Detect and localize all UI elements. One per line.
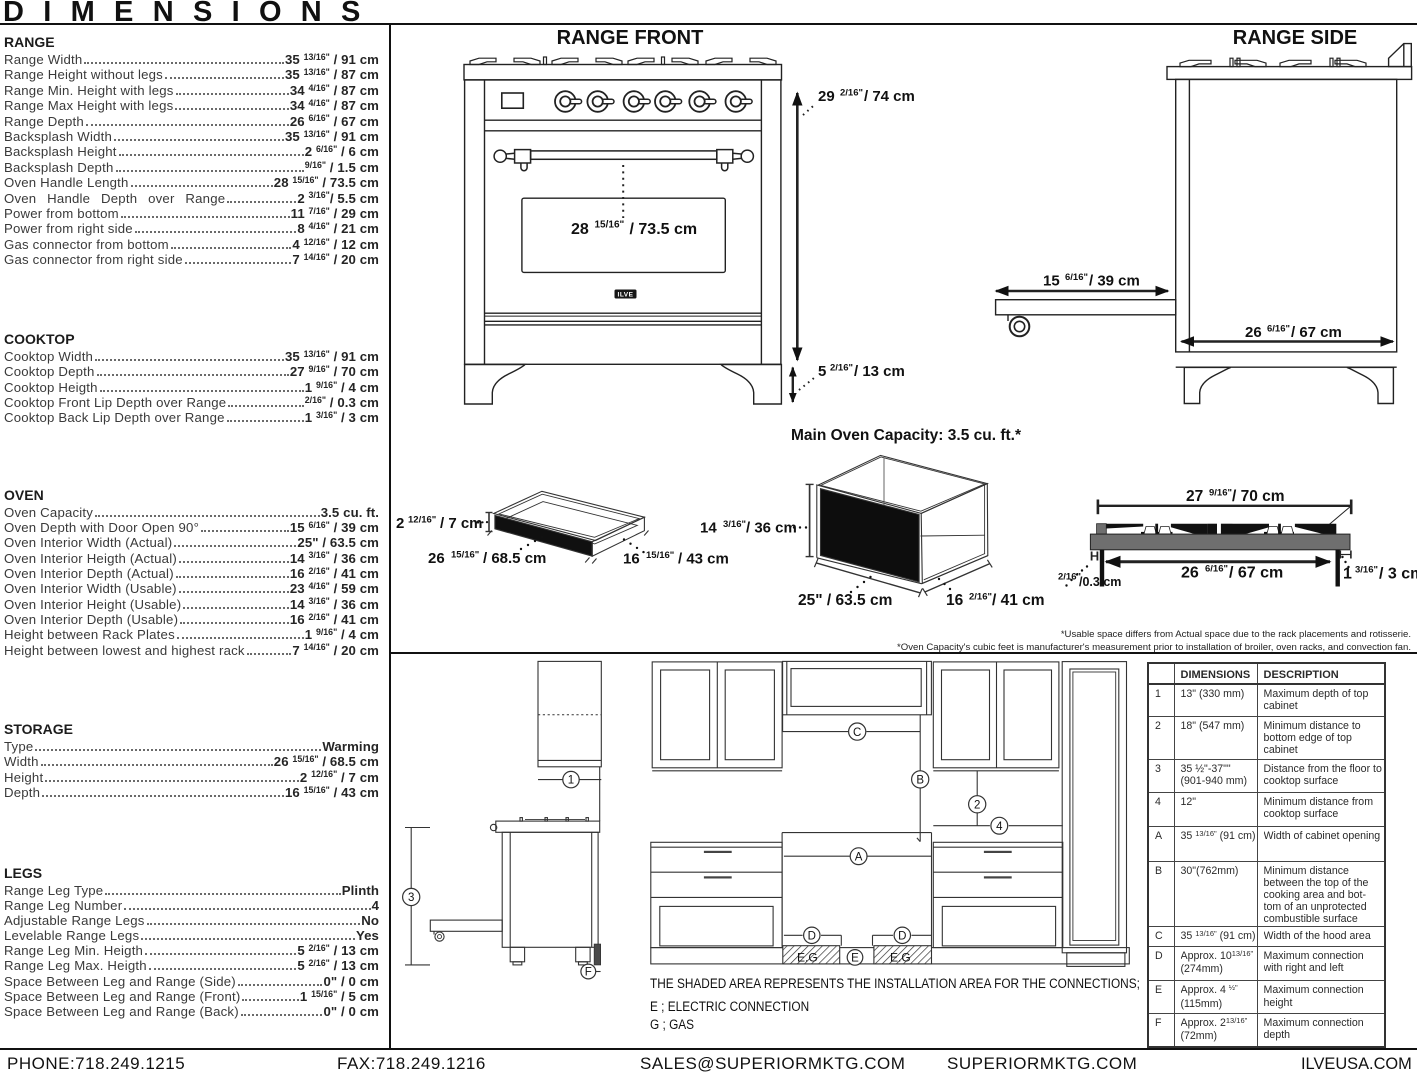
svg-text:15/16": 15/16" (451, 550, 479, 561)
svg-text:9/16": 9/16" (1209, 488, 1232, 499)
svg-text:/ 74 cm: / 74 cm (864, 88, 915, 105)
svg-text:/ 7 cm: / 7 cm (440, 515, 483, 532)
svg-text:3/16": 3/16" (723, 519, 746, 530)
svg-text:A: A (855, 851, 863, 863)
svg-text:/ 70 cm: / 70 cm (1232, 488, 1285, 505)
svg-text:4: 4 (996, 821, 1003, 833)
svg-text:D: D (808, 931, 816, 943)
svg-text:/ 3 cm: / 3 cm (1379, 566, 1417, 583)
svg-text:25" / 63.5 cm: 25" / 63.5 cm (798, 592, 892, 609)
svg-text:D: D (898, 931, 906, 943)
svg-text:6/16": 6/16" (1267, 324, 1290, 335)
svg-text:2/16": 2/16" (1058, 572, 1081, 583)
svg-text:2/16": 2/16" (840, 88, 863, 99)
svg-text:6/16": 6/16" (1205, 564, 1228, 575)
svg-text:1: 1 (568, 775, 574, 787)
svg-text:E.G: E.G (797, 951, 818, 965)
svg-text:2: 2 (974, 800, 980, 812)
svg-text:16: 16 (946, 592, 964, 609)
svg-text:E.G: E.G (890, 951, 911, 965)
svg-text:ILVE: ILVE (618, 291, 634, 298)
svg-text:1: 1 (1343, 566, 1352, 583)
svg-text:15: 15 (1043, 273, 1060, 290)
svg-text:E: E (851, 953, 859, 965)
svg-text:/0.3 cm: /0.3 cm (1079, 575, 1121, 589)
svg-text:5: 5 (818, 363, 826, 380)
svg-text:29: 29 (818, 88, 835, 105)
svg-text:/ 41 cm: / 41 cm (992, 592, 1045, 609)
svg-text:2/16": 2/16" (969, 592, 992, 603)
svg-text:12/16": 12/16" (408, 515, 436, 526)
svg-text:2: 2 (396, 515, 404, 532)
svg-text:3: 3 (408, 892, 414, 904)
svg-text:14: 14 (700, 520, 717, 537)
svg-text:6/16": 6/16" (1065, 272, 1088, 283)
svg-text:/ 67 cm: / 67 cm (1229, 565, 1283, 582)
svg-text:26: 26 (1245, 324, 1262, 341)
svg-text:/ 36 cm: / 36 cm (746, 520, 797, 537)
svg-text:C: C (853, 727, 861, 739)
svg-text:28: 28 (571, 221, 589, 238)
svg-text:/ 39 cm: / 39 cm (1089, 273, 1140, 290)
svg-text:27: 27 (1186, 488, 1203, 505)
svg-text:15/16": 15/16" (646, 550, 674, 561)
svg-text:3/16": 3/16" (1355, 565, 1378, 576)
svg-text:26: 26 (428, 550, 445, 567)
svg-text:/ 13 cm: / 13 cm (854, 363, 905, 380)
svg-text:/ 67 cm: / 67 cm (1291, 324, 1342, 341)
svg-text:B: B (916, 775, 924, 787)
svg-text:/ 73.5 cm: / 73.5 cm (630, 221, 698, 238)
svg-text:26: 26 (1181, 565, 1199, 582)
svg-text:16: 16 (623, 551, 640, 568)
svg-text:/ 68.5 cm: / 68.5 cm (483, 550, 546, 567)
svg-text:2/16": 2/16" (830, 363, 853, 374)
svg-text:/ 43 cm: / 43 cm (678, 551, 729, 568)
svg-text:15/16": 15/16" (595, 220, 625, 231)
svg-text:F: F (585, 967, 592, 979)
